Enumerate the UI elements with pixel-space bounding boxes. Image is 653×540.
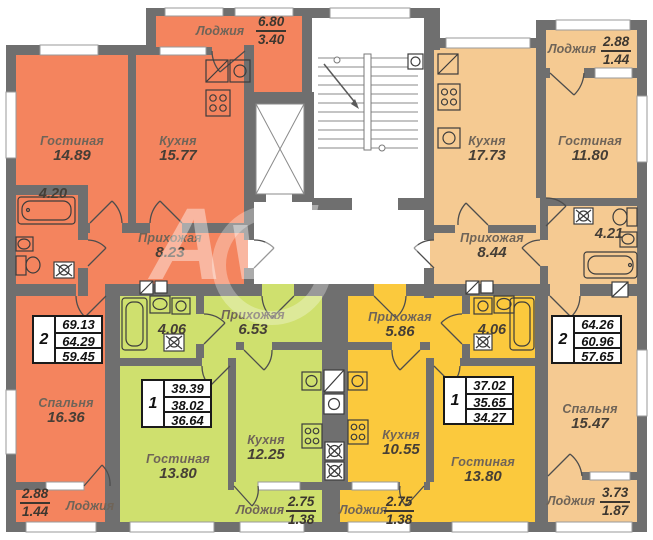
elevator-icon	[256, 104, 304, 194]
stairs-icon	[318, 54, 418, 151]
floor-plan-image[interactable]: Гостиная 14.89 Кухня 15.77 Лоджия 6.80 3…	[0, 0, 653, 540]
floor-plan-svg	[0, 0, 653, 540]
